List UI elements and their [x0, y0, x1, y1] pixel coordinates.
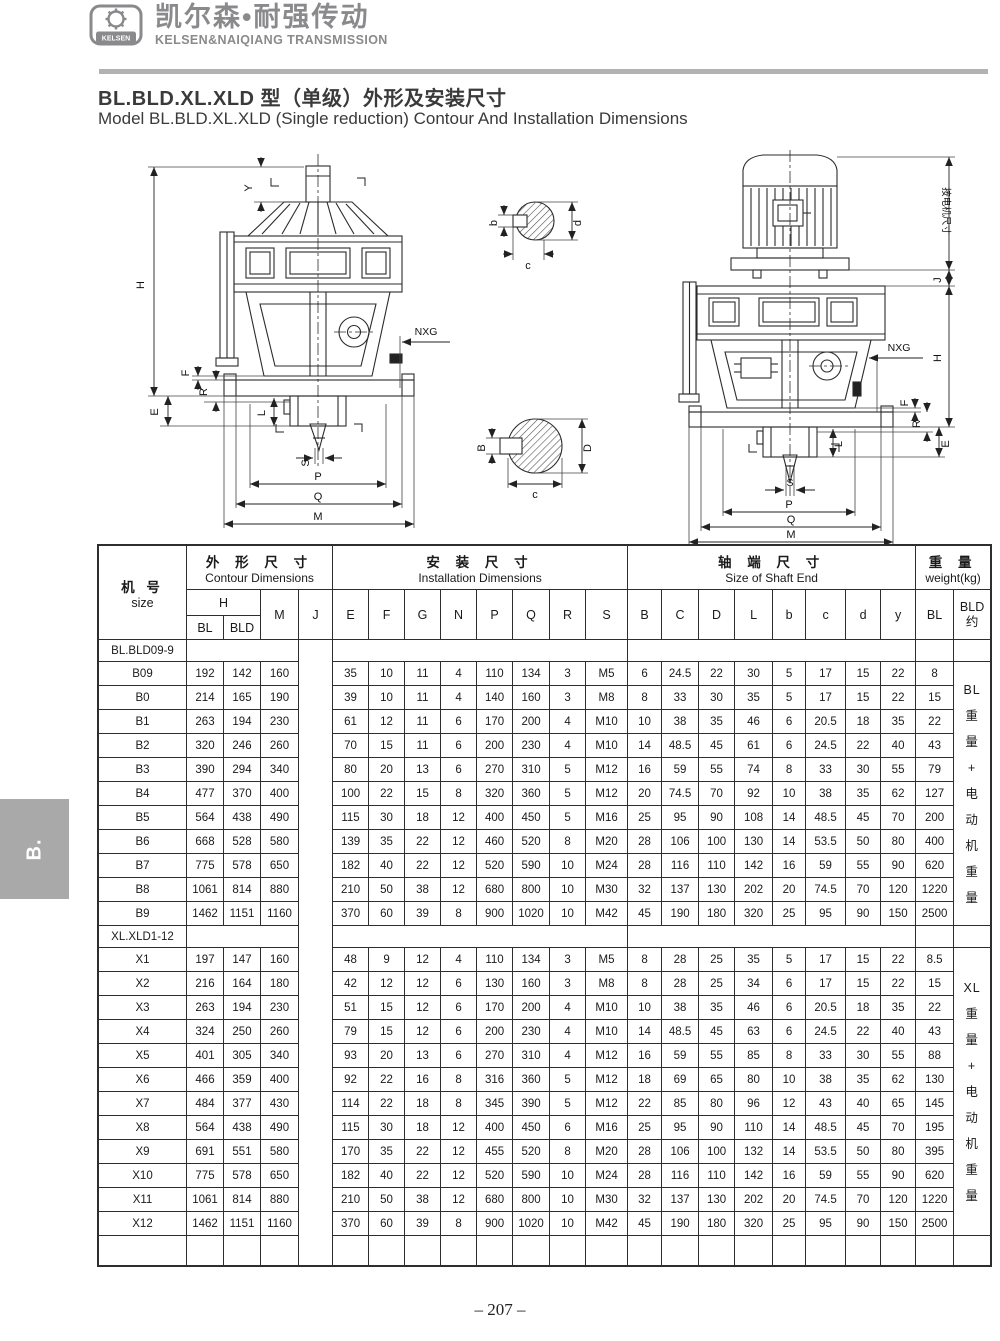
- side-tab[interactable]: B.: [0, 799, 69, 899]
- cell: 92: [333, 1068, 369, 1092]
- cell: 400: [261, 782, 299, 806]
- cell: 1160: [261, 1212, 299, 1236]
- cell: 45: [699, 1020, 735, 1044]
- table-body: BL.BLD09-9B0919214216035101141101343M562…: [99, 640, 991, 1266]
- cell: 142: [735, 1164, 773, 1188]
- cell: 114: [333, 1092, 369, 1116]
- cell: 35: [846, 1068, 881, 1092]
- cell: 564: [187, 1116, 224, 1140]
- cell: 33: [806, 758, 846, 782]
- cell: 551: [224, 1140, 261, 1164]
- cell: 48: [333, 948, 369, 972]
- cell: 65: [881, 1092, 916, 1116]
- cell: M5: [586, 662, 628, 686]
- table-row: X432425026079151262002304M101448.5456362…: [99, 1020, 991, 1044]
- cell: [477, 1236, 513, 1266]
- cell: 50: [846, 1140, 881, 1164]
- cell: 360: [513, 1068, 550, 1092]
- cell: M30: [586, 1188, 628, 1212]
- cell: 390: [513, 1092, 550, 1116]
- dim-label-nxg: NXG: [888, 342, 911, 354]
- table-row: X1077557865018240221252059010M2428116110…: [99, 1164, 991, 1188]
- cell: 10: [628, 710, 662, 734]
- cell: 691: [187, 1140, 224, 1164]
- cell: 6: [773, 710, 806, 734]
- cell: 4: [550, 1044, 586, 1068]
- row-size: B8: [99, 878, 187, 902]
- cell: 320: [187, 734, 224, 758]
- cell: 106: [662, 830, 699, 854]
- cell: 5: [550, 1068, 586, 1092]
- cell: M10: [586, 1020, 628, 1044]
- cell: 35: [699, 996, 735, 1020]
- cell: [662, 1236, 699, 1266]
- row-size: X4: [99, 1020, 187, 1044]
- dim-label-j: J: [932, 277, 944, 283]
- cell: 140: [477, 686, 513, 710]
- row-size: X3: [99, 996, 187, 1020]
- cell: 59: [662, 758, 699, 782]
- cell: 145: [916, 1092, 954, 1116]
- cell: 230: [261, 710, 299, 734]
- cell: 147: [224, 948, 261, 972]
- cell: 69: [662, 1068, 699, 1092]
- cell: 5: [550, 758, 586, 782]
- cell: 45: [628, 902, 662, 926]
- weight-note: XL重量+电动机重量: [954, 948, 991, 1236]
- cell: 900: [477, 1212, 513, 1236]
- cell: 55: [881, 1044, 916, 1068]
- cell: 17: [806, 662, 846, 686]
- cell: 20.5: [806, 710, 846, 734]
- cell: 590: [513, 854, 550, 878]
- col-header-e: E: [333, 590, 369, 640]
- cell: 8: [441, 1068, 477, 1092]
- cell: 370: [333, 1212, 369, 1236]
- cell: 45: [628, 1212, 662, 1236]
- cell: 70: [846, 1188, 881, 1212]
- cell: 39: [333, 686, 369, 710]
- col-header-m: M: [261, 590, 299, 640]
- col-header-s: S: [586, 590, 628, 640]
- technical-drawings: Y H F R E L S NXG P Q M: [98, 136, 987, 544]
- cell: M10: [586, 734, 628, 758]
- cell: 110: [699, 1164, 735, 1188]
- cell: 38: [662, 710, 699, 734]
- cell: 40: [846, 1092, 881, 1116]
- dim-label-motor-note: 按电机尺寸: [940, 187, 952, 235]
- cell: 34: [735, 972, 773, 996]
- dim-label-q: Q: [787, 514, 796, 526]
- cell: [187, 926, 299, 948]
- cell: 22: [916, 710, 954, 734]
- cell: M10: [586, 996, 628, 1020]
- cell: 528: [224, 830, 261, 854]
- cell: 6: [628, 662, 662, 686]
- cell: 35: [735, 948, 773, 972]
- table-row: X11106181488021050381268080010M303213713…: [99, 1188, 991, 1212]
- cell: 48.5: [806, 806, 846, 830]
- cell: 1151: [224, 1212, 261, 1236]
- cell: [586, 1236, 628, 1266]
- col-header-q: Q: [513, 590, 550, 640]
- cell: M5: [586, 948, 628, 972]
- cell: 320: [735, 902, 773, 926]
- cell: M8: [586, 686, 628, 710]
- cell: 24.5: [806, 1020, 846, 1044]
- dim-label-c-large: c: [532, 489, 538, 501]
- table-row: B0919214216035101141101343M5624.52230517…: [99, 662, 991, 686]
- cell: [628, 926, 916, 948]
- cell: 10: [773, 1068, 806, 1092]
- cell: 48.5: [662, 1020, 699, 1044]
- cell: 55: [846, 1164, 881, 1188]
- row-size: X1: [99, 948, 187, 972]
- cell: 35: [881, 710, 916, 734]
- cell: 110: [477, 662, 513, 686]
- cell: 62: [881, 782, 916, 806]
- row-size: B9: [99, 902, 187, 926]
- cell: 775: [187, 1164, 224, 1188]
- cell: 8: [628, 686, 662, 710]
- cell: 8: [441, 782, 477, 806]
- cell: 370: [333, 902, 369, 926]
- cell: 55: [881, 758, 916, 782]
- dim-label-q: Q: [314, 491, 323, 503]
- cell: 590: [513, 1164, 550, 1188]
- cell: [333, 1236, 369, 1266]
- cell: 11: [405, 662, 441, 686]
- cell: 11: [405, 734, 441, 758]
- cell: 38: [806, 782, 846, 806]
- cell: 520: [477, 854, 513, 878]
- cell: 520: [477, 1164, 513, 1188]
- cell: 22: [699, 662, 735, 686]
- cell: 12: [441, 854, 477, 878]
- cell: 200: [477, 734, 513, 758]
- cell: 85: [662, 1092, 699, 1116]
- cell: 15: [916, 972, 954, 996]
- cell: 200: [513, 996, 550, 1020]
- row-size: B7: [99, 854, 187, 878]
- cell: 438: [224, 1116, 261, 1140]
- cell: 30: [369, 1116, 405, 1140]
- col-header-weight-bld: BLD 约: [954, 590, 991, 640]
- cell: 74: [735, 758, 773, 782]
- cell: 16: [628, 758, 662, 782]
- cell: 35: [699, 710, 735, 734]
- row-size: B4: [99, 782, 187, 806]
- table-row: B8106181488021050381268080010M3032137130…: [99, 878, 991, 902]
- cell: 900: [477, 902, 513, 926]
- cell: 1462: [187, 902, 224, 926]
- cell: 116: [662, 854, 699, 878]
- cell: 11: [405, 710, 441, 734]
- cell: 316: [477, 1068, 513, 1092]
- cell: 35: [333, 662, 369, 686]
- cell: 10: [550, 878, 586, 902]
- page-number: – 207 –: [0, 1300, 1000, 1320]
- cell: M42: [586, 902, 628, 926]
- table-row: X221616418042121261301603M88282534617152…: [99, 972, 991, 996]
- cell: 95: [662, 1116, 699, 1140]
- cell: 80: [881, 1140, 916, 1164]
- cell: 6: [441, 1044, 477, 1068]
- section-label: BL.BLD09-9: [99, 640, 187, 662]
- cell: 15: [405, 782, 441, 806]
- cell: 400: [477, 806, 513, 830]
- cell: M20: [586, 1140, 628, 1164]
- cell: 668: [187, 830, 224, 854]
- cell: 1061: [187, 878, 224, 902]
- dim-label-p: P: [785, 499, 792, 511]
- cell: 8: [550, 830, 586, 854]
- cell: 80: [881, 830, 916, 854]
- empty-row: [99, 1236, 991, 1266]
- cell: 30: [699, 686, 735, 710]
- cell: 466: [187, 1068, 224, 1092]
- cell: 477: [187, 782, 224, 806]
- cell: 95: [806, 1212, 846, 1236]
- cell: 11: [405, 686, 441, 710]
- row-size: B09: [99, 662, 187, 686]
- cell: 490: [261, 1116, 299, 1140]
- cell: [333, 640, 628, 662]
- cell: 127: [916, 782, 954, 806]
- cell: 194: [224, 996, 261, 1020]
- cell: 210: [333, 1188, 369, 1212]
- cell: 370: [224, 782, 261, 806]
- cell: 438: [224, 806, 261, 830]
- cell: 25: [773, 902, 806, 926]
- cell: 24.5: [662, 662, 699, 686]
- cell: 5: [550, 1092, 586, 1116]
- cell: 8: [628, 948, 662, 972]
- cell: 40: [881, 734, 916, 758]
- cell: M12: [586, 1068, 628, 1092]
- row-size: X12: [99, 1212, 187, 1236]
- cell: 160: [513, 686, 550, 710]
- cell: 20: [773, 1188, 806, 1212]
- cell: 6: [441, 710, 477, 734]
- cell: 197: [187, 948, 224, 972]
- cell: 10: [369, 686, 405, 710]
- row-size: B1: [99, 710, 187, 734]
- cell: 18: [846, 996, 881, 1020]
- cell: 680: [477, 878, 513, 902]
- col-header-l-cap: L: [735, 590, 773, 640]
- cell: 310: [513, 758, 550, 782]
- cell: [916, 926, 954, 948]
- cell: 28: [628, 1140, 662, 1164]
- col-header-d-cap: D: [699, 590, 735, 640]
- cell: 10: [550, 854, 586, 878]
- reducer-drawing-without-motor: Y H F R E L S NXG P Q M: [98, 136, 460, 541]
- cell: 6: [441, 734, 477, 758]
- motor-reducer-outline: [679, 155, 893, 482]
- cell: 6: [441, 972, 477, 996]
- cell: 305: [224, 1044, 261, 1068]
- cell: [628, 640, 916, 662]
- cell: 70: [699, 782, 735, 806]
- cell: 8: [441, 1092, 477, 1116]
- page-title-en: Model BL.BLD.XL.XLD (Single reduction) C…: [98, 109, 688, 129]
- cell: 59: [662, 1044, 699, 1068]
- cell: [224, 1236, 261, 1266]
- dim-label-b-large: B: [476, 444, 488, 451]
- cell: 106: [662, 1140, 699, 1164]
- cell: 340: [261, 1044, 299, 1068]
- cell: 5: [550, 806, 586, 830]
- cell: 20: [773, 878, 806, 902]
- cell: 22: [881, 686, 916, 710]
- j-column: [299, 640, 333, 1266]
- dim-label-s: S: [786, 477, 793, 489]
- cell: 650: [261, 1164, 299, 1188]
- cell: 142: [224, 662, 261, 686]
- dim-label-e: E: [149, 408, 161, 415]
- cell: 22: [846, 734, 881, 758]
- cell: 230: [513, 734, 550, 758]
- cell: 59: [806, 854, 846, 878]
- cell: 15: [846, 686, 881, 710]
- cell: 4: [550, 996, 586, 1020]
- cell: 6: [773, 1020, 806, 1044]
- cell: 5: [773, 948, 806, 972]
- cell: 484: [187, 1092, 224, 1116]
- cell: 345: [477, 1092, 513, 1116]
- cell: [881, 1236, 916, 1266]
- cell: 115: [333, 806, 369, 830]
- cell: 1020: [513, 902, 550, 926]
- cell: 25: [699, 972, 735, 996]
- cell: M16: [586, 1116, 628, 1140]
- cell: 270: [477, 1044, 513, 1068]
- logo-name-en: KELSEN&NAIQIANG TRANSMISSION: [155, 33, 388, 47]
- cell: 30: [369, 806, 405, 830]
- cell: 12: [773, 1092, 806, 1116]
- cell: 165: [224, 686, 261, 710]
- cell: 18: [846, 710, 881, 734]
- cell: 1462: [187, 1212, 224, 1236]
- cell: 12: [441, 1116, 477, 1140]
- cell: 6: [773, 972, 806, 996]
- cell: [954, 640, 991, 662]
- cell: 263: [187, 996, 224, 1020]
- cell: 190: [662, 902, 699, 926]
- cell: 45: [846, 806, 881, 830]
- logo-icon: KELSEN: [88, 3, 146, 49]
- cell: 110: [735, 1116, 773, 1140]
- cell: 42: [333, 972, 369, 996]
- cell: [405, 1236, 441, 1266]
- cell: 400: [261, 1068, 299, 1092]
- cell: 460: [477, 830, 513, 854]
- dim-label-f: F: [899, 399, 911, 406]
- cell: 100: [699, 830, 735, 854]
- cell: 260: [261, 734, 299, 758]
- dim-label-f: F: [180, 369, 192, 376]
- cell: 74.5: [806, 878, 846, 902]
- cell: 564: [187, 806, 224, 830]
- cell: M16: [586, 806, 628, 830]
- cell: 22: [846, 1020, 881, 1044]
- cell: 28: [628, 830, 662, 854]
- cell: [954, 1236, 991, 1266]
- dim-label-c-small: c: [525, 260, 531, 272]
- cell: 74.5: [806, 1188, 846, 1212]
- dim-label-s: S: [300, 459, 312, 466]
- cell: [261, 1236, 299, 1266]
- cell: 160: [513, 972, 550, 996]
- table-row: B777557865018240221252059010M24281161101…: [99, 854, 991, 878]
- table-row: X7484377430114221883453905M1222858096124…: [99, 1092, 991, 1116]
- cell: 3: [550, 686, 586, 710]
- cell: 70: [333, 734, 369, 758]
- cell: 12: [441, 830, 477, 854]
- cell: 35: [369, 1140, 405, 1164]
- cell: 22: [881, 948, 916, 972]
- cell: [99, 1236, 187, 1266]
- cell: 13: [405, 1044, 441, 1068]
- col-header-c-cap: C: [662, 590, 699, 640]
- cell: 90: [881, 854, 916, 878]
- cell: 455: [477, 1140, 513, 1164]
- cell: 580: [261, 1140, 299, 1164]
- cell: 200: [513, 710, 550, 734]
- cell: 294: [224, 758, 261, 782]
- cell: 33: [662, 686, 699, 710]
- col-header-h-bld: BLD: [224, 616, 261, 640]
- col-header-n: N: [441, 590, 477, 640]
- cell: 134: [513, 948, 550, 972]
- cell: 28: [628, 854, 662, 878]
- cell: 22: [405, 854, 441, 878]
- cell: 520: [513, 1140, 550, 1164]
- cell: 70: [881, 1116, 916, 1140]
- dim-label-r: R: [198, 388, 210, 396]
- cell: 360: [513, 782, 550, 806]
- cell: 43: [806, 1092, 846, 1116]
- cell: 51: [333, 996, 369, 1020]
- cell: [628, 1236, 662, 1266]
- cell: [333, 926, 628, 948]
- row-size: X5: [99, 1044, 187, 1068]
- cell: 340: [261, 758, 299, 782]
- cell: 400: [477, 1116, 513, 1140]
- table-row: B4477370400100221583203605M122074.570921…: [99, 782, 991, 806]
- cell: 93: [333, 1044, 369, 1068]
- table-row: X646635940092221683163605M12186965801038…: [99, 1068, 991, 1092]
- cell: 39: [405, 902, 441, 926]
- cell: 22: [881, 662, 916, 686]
- cell: 55: [846, 854, 881, 878]
- col-header-weight-bl: BL: [916, 590, 954, 640]
- cell: 12: [369, 972, 405, 996]
- cell: 6: [441, 758, 477, 782]
- group-header-weight: 重 量 weight(kg): [916, 546, 991, 590]
- group-header-shaft-end: 轴 端 尺 寸 Size of Shaft End: [628, 546, 916, 590]
- cell: 100: [699, 1140, 735, 1164]
- dim-label-p: P: [314, 471, 321, 483]
- cell: 40: [369, 1164, 405, 1188]
- cell: 120: [881, 878, 916, 902]
- table-row: X96915515801703522124555208M202810610013…: [99, 1140, 991, 1164]
- table-row: X1214621151116037060398900102010M4245190…: [99, 1212, 991, 1236]
- col-header-h-bl: BL: [187, 616, 224, 640]
- logo-name-cn: 凯尔森•耐强传动: [155, 3, 388, 32]
- cell: 6: [441, 1020, 477, 1044]
